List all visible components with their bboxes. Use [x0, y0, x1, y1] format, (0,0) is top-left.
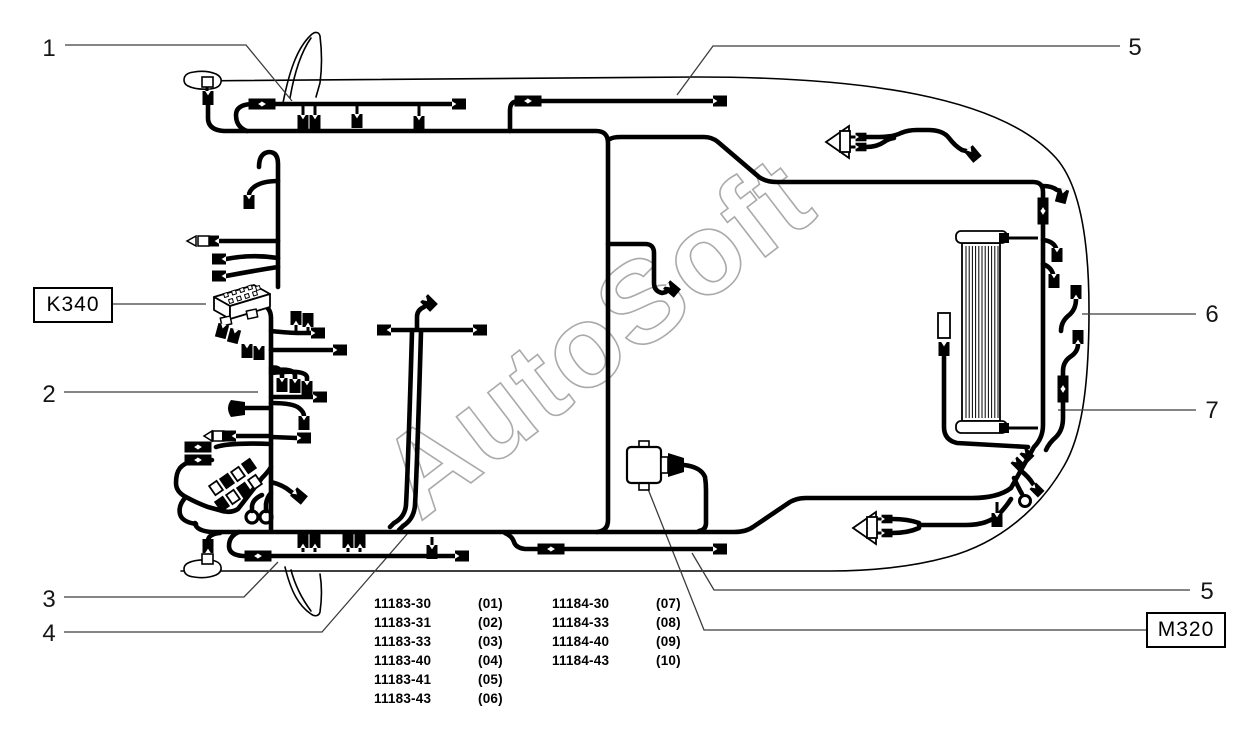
- m320-module: [627, 441, 684, 490]
- watermark-text: AutoSoft: [356, 131, 836, 542]
- callout-5-top: 5: [1122, 34, 1148, 62]
- part-row: 11184-33(08): [552, 613, 681, 632]
- m320-label: M320: [1158, 618, 1215, 642]
- front-fin-top: [283, 32, 322, 103]
- part-list-right: 11184-30(07) 11184-33(08) 11184-40(09) 1…: [552, 594, 681, 670]
- k340-label: K340: [46, 293, 99, 317]
- callout-2: 2: [36, 381, 62, 409]
- rear-defogger-element: [956, 231, 1009, 433]
- callout-5-bottom: 5: [1194, 578, 1220, 606]
- part-row: 11184-30(07): [552, 594, 681, 613]
- part-row: 11184-40(09): [552, 632, 681, 651]
- speaker-top-wires: [866, 130, 966, 151]
- ring-terminal-icon: [1020, 496, 1031, 507]
- m320-wire: [684, 465, 706, 531]
- part-row: 11183-31(02): [374, 613, 503, 632]
- speaker-top-icon: [826, 126, 850, 158]
- floor-trunk-harness: [195, 488, 1011, 532]
- front-fin-bottom: [285, 567, 322, 616]
- m320-label-box: M320: [1146, 612, 1226, 648]
- callout-7: 7: [1199, 397, 1225, 425]
- part-list-left: 11183-30(01) 11183-31(02) 11183-33(03) 1…: [374, 594, 503, 708]
- k340-connector-block: [214, 285, 270, 326]
- part-row: 11183-33(03): [374, 632, 503, 651]
- part-row: 11183-30(01): [374, 594, 503, 613]
- callout-6: 6: [1199, 301, 1225, 329]
- part-row: 11183-43(06): [374, 689, 503, 708]
- part-row: 11183-40(04): [374, 651, 503, 670]
- callout-3: 3: [36, 586, 62, 614]
- wiring-diagram-page: AutoSoft: [0, 0, 1249, 739]
- k340-label-box: K340: [33, 287, 113, 323]
- part-row: 11183-41(05): [374, 670, 503, 689]
- part-row: 11184-43(10): [552, 651, 681, 670]
- callout-1: 1: [36, 35, 62, 63]
- callout-4: 4: [36, 620, 62, 648]
- bottom-door-harness: [505, 533, 713, 549]
- inline-fuse-icon: [938, 313, 950, 356]
- speaker-bottom-icon: [853, 512, 877, 544]
